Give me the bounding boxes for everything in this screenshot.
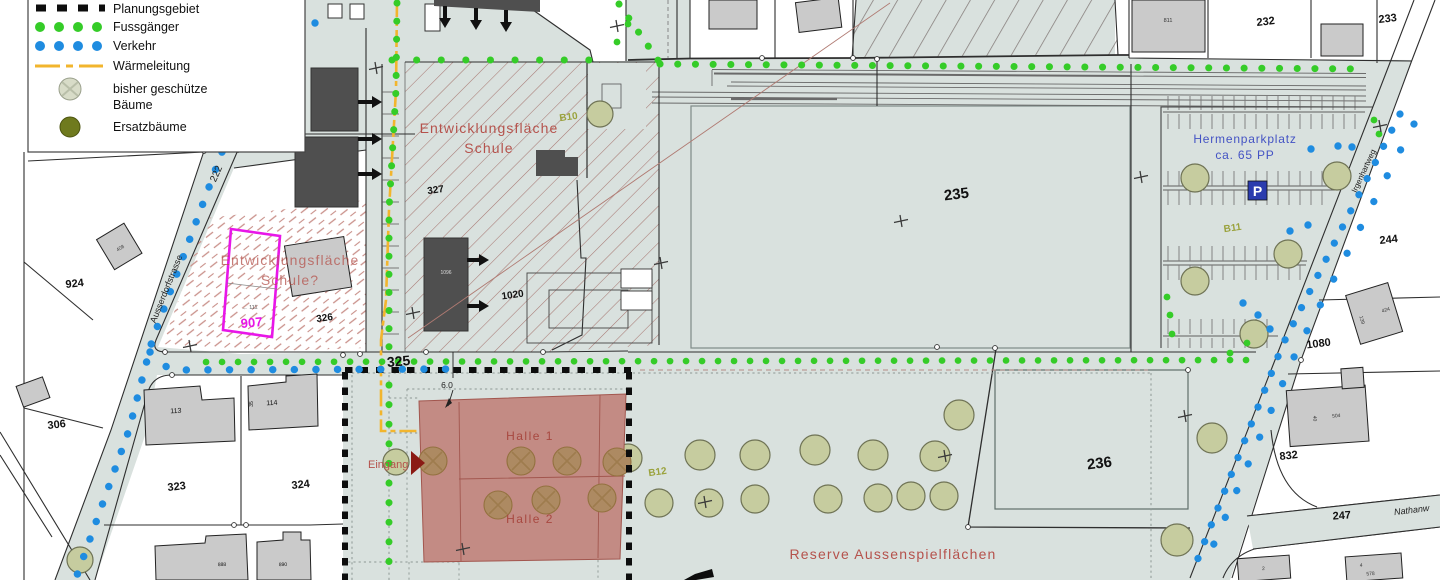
svg-text:Reserve Aussenspielflächen: Reserve Aussenspielflächen xyxy=(789,546,996,562)
svg-text:907: 907 xyxy=(240,314,263,331)
svg-text:113: 113 xyxy=(170,408,182,416)
svg-text:832: 832 xyxy=(1279,449,1299,463)
svg-text:35: 35 xyxy=(249,401,255,407)
svg-text:Schule: Schule xyxy=(464,140,513,156)
svg-text:323: 323 xyxy=(167,480,187,494)
svg-text:Halle 2: Halle 2 xyxy=(506,512,554,526)
svg-text:924: 924 xyxy=(65,277,85,291)
svg-text:P: P xyxy=(1253,183,1262,199)
svg-text:233: 233 xyxy=(1378,12,1398,26)
svg-text:888: 888 xyxy=(218,562,227,568)
svg-text:236: 236 xyxy=(1086,454,1113,474)
svg-text:Schule?: Schule? xyxy=(261,272,319,288)
svg-text:40: 40 xyxy=(1311,416,1317,422)
svg-text:1096: 1096 xyxy=(440,270,451,276)
svg-text:Bäume: Bäume xyxy=(113,98,153,112)
svg-text:235: 235 xyxy=(943,185,970,205)
svg-text:Entwicklungsfläche: Entwicklungsfläche xyxy=(420,120,559,136)
svg-text:811: 811 xyxy=(1164,18,1173,24)
svg-text:244: 244 xyxy=(1379,233,1399,247)
svg-text:890: 890 xyxy=(279,562,288,568)
svg-text:Halle 1: Halle 1 xyxy=(506,429,554,443)
svg-text:ca. 65 PP: ca. 65 PP xyxy=(1215,148,1274,162)
svg-text:114: 114 xyxy=(266,400,278,408)
svg-text:324: 324 xyxy=(291,478,311,492)
svg-text:247: 247 xyxy=(1332,509,1351,522)
svg-text:306: 306 xyxy=(47,418,67,432)
svg-text:Verkehr: Verkehr xyxy=(113,39,156,53)
svg-text:Eingang: Eingang xyxy=(368,459,408,471)
svg-text:6.0: 6.0 xyxy=(441,380,453,390)
svg-text:504: 504 xyxy=(1332,413,1341,420)
svg-text:325: 325 xyxy=(386,352,411,370)
svg-text:Wärmeleitung: Wärmeleitung xyxy=(113,59,190,73)
svg-text:578: 578 xyxy=(1366,571,1375,578)
svg-text:Entwicklungsfläche: Entwicklungsfläche xyxy=(221,252,360,268)
svg-text:232: 232 xyxy=(1256,15,1276,29)
svg-text:Hermenparkplatz: Hermenparkplatz xyxy=(1193,132,1296,146)
svg-text:bisher geschütze: bisher geschütze xyxy=(113,82,208,96)
svg-text:Ersatzbäume: Ersatzbäume xyxy=(113,120,187,134)
svg-text:Fussgänger: Fussgänger xyxy=(113,20,179,34)
svg-text:Planungsgebiet: Planungsgebiet xyxy=(113,2,200,16)
